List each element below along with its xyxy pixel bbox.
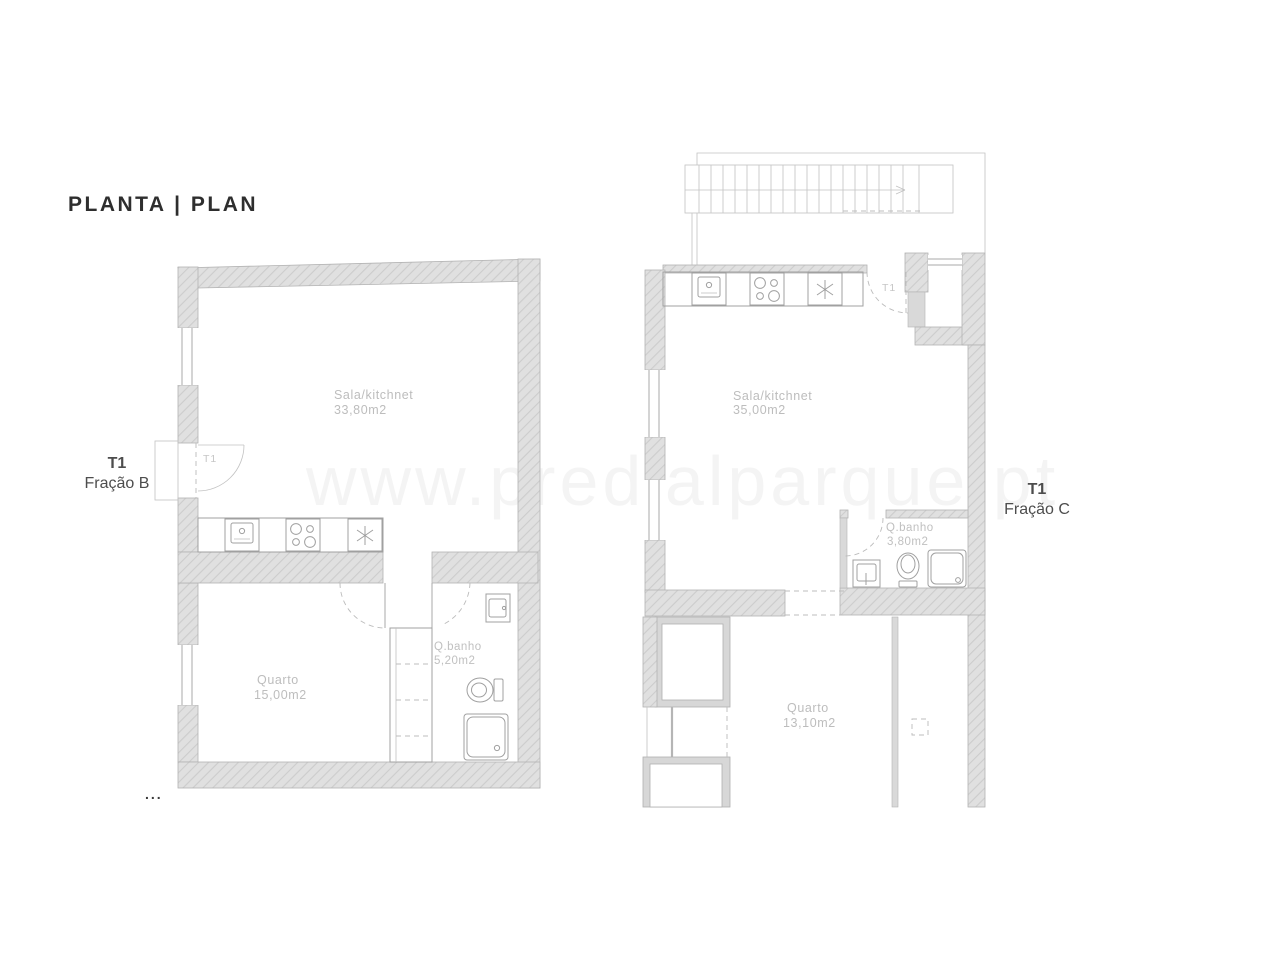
room-label-quarto-b: Quarto bbox=[257, 673, 299, 687]
wall-top-b bbox=[178, 259, 540, 288]
room-area-quarto-c: 13,10m2 bbox=[783, 716, 836, 730]
wall-bottom-sala-c bbox=[645, 590, 785, 616]
room-label-sala-c: Sala/kitchnet bbox=[733, 389, 812, 403]
stove-icon bbox=[291, 524, 316, 548]
page-title: PLANTA | PLAN bbox=[68, 193, 258, 216]
wall-left-b2 bbox=[178, 385, 198, 443]
room-label-banho-b: Q.banho bbox=[434, 641, 482, 653]
stove-icon bbox=[755, 278, 780, 302]
bath-sink-icon-b bbox=[486, 594, 510, 622]
fridge-icon bbox=[817, 280, 833, 299]
wall-left-b1 bbox=[178, 267, 198, 328]
shower-icon-b bbox=[464, 714, 508, 760]
toilet-icon-b bbox=[467, 678, 503, 702]
room-area-quarto-b: 15,00m2 bbox=[254, 688, 307, 702]
wall-left-b4 bbox=[178, 583, 198, 645]
wall-left-c4 bbox=[643, 617, 657, 707]
wall-left-b5 bbox=[178, 705, 198, 762]
kitchen-sink-icon bbox=[698, 277, 720, 297]
wall-left-b3 bbox=[178, 498, 198, 552]
plan-drawing: www.predialparque.pt T bbox=[0, 0, 1280, 960]
niche-c bbox=[908, 292, 925, 327]
watermark-text: www.predialparque.pt bbox=[305, 442, 1059, 520]
wall-right-c bbox=[968, 345, 985, 807]
window-sala-c1 bbox=[643, 370, 667, 437]
wall-bottom-b bbox=[178, 762, 540, 788]
room-label-banho-c: Q.banho bbox=[886, 522, 934, 534]
fridge-icon bbox=[357, 526, 373, 545]
wall-mid-left-b bbox=[178, 552, 383, 583]
room-area-sala-c: 35,00m2 bbox=[733, 403, 786, 417]
kitchen-counter-c bbox=[663, 272, 863, 306]
door-label-b: T1 bbox=[203, 453, 217, 465]
room-area-sala-b: 33,80m2 bbox=[334, 403, 387, 417]
wall-left-c3 bbox=[645, 540, 665, 592]
wall-jog-c bbox=[915, 327, 968, 345]
passage-sala-quarto-c bbox=[785, 591, 847, 615]
kitchen-counter-b bbox=[198, 518, 383, 552]
wall-left-c2 bbox=[645, 437, 665, 480]
wall-mid-right-b bbox=[432, 552, 538, 583]
staircase bbox=[685, 153, 985, 265]
wardrobe-b bbox=[390, 628, 432, 762]
room-label-quarto-c: Quarto bbox=[787, 701, 829, 715]
window-top-right-c bbox=[928, 255, 962, 270]
room-area-banho-c: 3,80m2 bbox=[887, 536, 928, 548]
wall-left-c1 bbox=[645, 270, 665, 370]
wall-bottom-banho-c bbox=[840, 588, 985, 615]
bath-sink-icon-c bbox=[853, 560, 880, 587]
window-sala-b bbox=[176, 328, 200, 385]
room-area-banho-b: 5,20m2 bbox=[434, 655, 475, 667]
wall-quarto-right-c bbox=[892, 617, 898, 807]
kitchen-sink-icon bbox=[231, 523, 253, 543]
floor-plan-page: www.predialparque.pt T bbox=[0, 0, 1280, 960]
shower-icon-c bbox=[928, 550, 966, 587]
window-sala-c2 bbox=[643, 480, 667, 540]
wall-right-b bbox=[518, 259, 540, 788]
duct-marker-c bbox=[912, 719, 928, 735]
floor-plan-fracao-b: T1 bbox=[155, 259, 540, 788]
ellipsis-text: ... bbox=[145, 786, 163, 802]
unit-code-c: T1 bbox=[1028, 481, 1047, 498]
unit-label-b: T1 Fração B bbox=[85, 455, 150, 492]
entrance-door-b bbox=[155, 441, 244, 500]
unit-name-b: Fração B bbox=[85, 475, 150, 492]
wall-right-top-c bbox=[962, 253, 985, 345]
unit-name-c: Fração C bbox=[1004, 501, 1070, 518]
window-quarto-b bbox=[176, 645, 200, 705]
interior-doors-b bbox=[340, 583, 470, 628]
door-label-c: T1 bbox=[882, 282, 896, 294]
closet-2-c bbox=[643, 757, 730, 807]
stair-treads bbox=[699, 165, 919, 213]
toilet-icon-c bbox=[897, 553, 919, 587]
window-lower-left-c bbox=[647, 707, 672, 757]
wall-doorblock-c bbox=[905, 253, 928, 292]
unit-code-b: T1 bbox=[108, 455, 127, 472]
closet-1-c bbox=[655, 617, 730, 707]
room-label-sala-b: Sala/kitchnet bbox=[334, 388, 413, 402]
